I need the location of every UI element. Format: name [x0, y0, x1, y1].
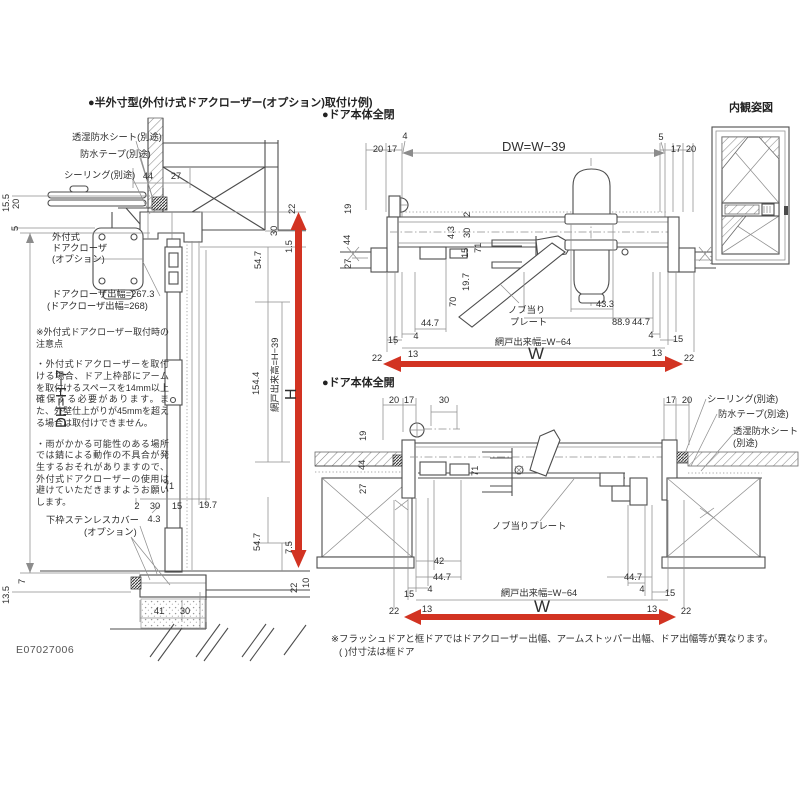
dim-label: 4	[402, 131, 407, 141]
callout-door-closer-3: (オプション)	[52, 254, 105, 264]
right-jamb-closed	[668, 217, 716, 272]
dim-label: 15	[404, 589, 414, 599]
callout-sealing-open: シーリング(別途)	[707, 393, 778, 404]
dim-label: 4	[648, 330, 653, 340]
closer-projection-label: ドアクローザ出幅=267.3	[52, 288, 154, 299]
closed-section-title: ●ドア本体全閉	[322, 106, 395, 122]
dim-label: 44.7	[433, 572, 451, 582]
dim-label: 22	[287, 204, 297, 214]
dw-label: DW=W−39	[502, 139, 566, 154]
dim-label: 2	[462, 212, 472, 217]
dim-label: 30	[269, 226, 279, 236]
right-wall-open	[662, 452, 798, 568]
dim-label: 27	[343, 259, 353, 269]
callout-moisture-sheet: 透湿防水シート(別途)	[72, 131, 162, 142]
dim-label: 30	[439, 395, 449, 405]
callout-knob-plate-2: プレート	[510, 317, 547, 327]
dim-label: 17	[671, 144, 681, 154]
dim-label: 27	[358, 484, 368, 494]
dim-label: 22	[681, 606, 691, 616]
dim-label: 13.5	[1, 586, 11, 604]
hinge-open	[410, 423, 460, 437]
callout-waterproof-tape: 防水テープ(別途)	[80, 148, 151, 159]
dim-label: 54.7	[253, 251, 263, 269]
dim-label: 71	[473, 243, 483, 253]
dim-label: 17	[387, 144, 397, 154]
head-frame-profile	[140, 212, 202, 242]
w-label-open: W	[534, 597, 550, 616]
dim-label: 54.7	[252, 533, 262, 551]
dim-label: 19	[343, 204, 353, 214]
dim-label: 44.7	[624, 572, 642, 582]
dim-label: 27	[171, 171, 181, 181]
dim-label: 19	[358, 431, 368, 441]
dim-label: 10	[301, 578, 311, 588]
dim-label: 20	[389, 395, 399, 405]
caution-heading: ※外付式ドアクローザー取付時の注意点	[36, 327, 169, 350]
dim-label: 7	[17, 579, 27, 584]
dim-label: 4	[427, 584, 432, 594]
callout-knob-plate-open: ノブ当りプレート	[492, 520, 566, 531]
dim-label: 30	[180, 606, 190, 616]
callout-door-closer: 外付式	[52, 231, 80, 242]
dim-label: 44	[357, 460, 367, 470]
elevation-handle-tab	[784, 206, 788, 215]
dim-label: 22	[289, 583, 299, 593]
dim-label: 19.7	[199, 500, 217, 510]
dim-label: 15	[460, 248, 470, 258]
caution-note-2: ・雨がかかる可能性のある場所では錆による動作の不具合が発生するおそれがありますの…	[36, 439, 169, 509]
callout-moisture-sheet-open-2: (別途)	[733, 437, 758, 448]
door-leaf-section	[165, 239, 192, 572]
footnote-1: ※フラッシュドアと框ドアではドアクローザー出幅、アームストッパー出幅、ドア出幅等…	[331, 634, 796, 647]
concrete-step	[141, 599, 205, 628]
dim-label: 4.3	[148, 514, 161, 524]
callout-door-closer-2: ドアクローザ	[52, 243, 107, 253]
dim-label: 44	[143, 171, 153, 181]
open-section-title: ●ドア本体全開	[322, 374, 395, 390]
elevation-drawing	[712, 127, 789, 264]
dim-label: 44.7	[421, 318, 439, 328]
closer-projection-alt-label: (ドアクローザ出幅=268)	[47, 300, 148, 311]
callout-knob-plate: ノブ当り	[508, 304, 545, 315]
technical-drawing-page: 透湿防水シート(別途)防水テープ(別途)シーリング(別途)外付式ドアクローザ(オ…	[0, 0, 800, 800]
door-leaf-open	[418, 462, 625, 478]
footnote-block: ※フラッシュドアと框ドアではドアクローザー出幅、アームストッパー出幅、ドア出幅等…	[331, 634, 796, 660]
dim-label: 5	[658, 132, 663, 142]
sill-and-ground	[40, 571, 310, 661]
dim-label: 41	[154, 606, 164, 616]
latch-assembly-open	[482, 430, 560, 496]
dim-label: 42	[434, 556, 444, 566]
door-leaf-closed	[390, 212, 674, 259]
dim-label: 15	[673, 334, 683, 344]
callout-sill-cover-2: (オプション)	[84, 527, 137, 537]
dim-label: 22	[372, 353, 382, 363]
dim-label: 20	[682, 395, 692, 405]
hinge-closed	[389, 196, 409, 217]
sealing-block	[152, 197, 167, 210]
dim-label: 30	[462, 228, 472, 238]
callout-sill-cover: 下枠ステンレスカバー	[46, 514, 139, 525]
caution-note-block: ※外付式ドアクローザー取付時の注意点 ・外付式ドアクローザーを取付ける場合、ドア…	[36, 327, 169, 509]
footnote-2: ( )付寸法は框ドア	[339, 647, 796, 660]
callout-waterproof-tape-open: 防水テープ(別途)	[718, 408, 789, 419]
dim-label: 4	[413, 331, 418, 341]
callout-sealing: シーリング(別途)	[64, 169, 135, 180]
dim-label: 4.3	[446, 226, 456, 239]
dim-label: 22	[389, 606, 399, 616]
dim-label: 13	[652, 348, 662, 358]
screen-height-label: 網戸出来高=H−39	[269, 338, 280, 412]
dim-label: 70	[448, 297, 458, 307]
callout-moisture-sheet-open: 透湿防水シート	[733, 425, 798, 436]
dim-label: 17	[404, 395, 414, 405]
dim-label: 44	[342, 235, 352, 245]
dim-label: 17	[666, 395, 676, 405]
dim-label: 15	[172, 501, 182, 511]
dim-label: 15.5	[1, 194, 11, 212]
dim-label: 1.5	[284, 240, 294, 253]
dim-label: 13	[408, 349, 418, 359]
dim-label: 20	[373, 144, 383, 154]
dim-label: 43.3	[596, 299, 614, 309]
dim-label: 88.9	[612, 317, 630, 327]
caution-note-1: ・外付式ドアクローザーを取付ける場合、ドア上枠部にアームを取付けるスペースを14…	[36, 359, 169, 429]
dim-label: 20	[11, 199, 21, 209]
drawing-code: E07027006	[16, 644, 74, 656]
dim-label: 22	[684, 353, 694, 363]
open-plan-drawing: 2017301720シーリング(別途)防水テープ(別途)透湿防水シート(別途)1…	[315, 393, 798, 625]
dim-label: 15	[665, 588, 675, 598]
elevation-title: 内観姿図	[716, 99, 786, 115]
dim-label: 15	[388, 335, 398, 345]
dim-label: 44.7	[632, 317, 650, 327]
dim-label: 13	[647, 604, 657, 614]
lock-edge-open	[600, 473, 647, 505]
dim-label: 13	[422, 604, 432, 614]
w-label: W	[528, 344, 544, 363]
dim-label: 20	[686, 144, 696, 154]
dim-label: 19.7	[461, 273, 471, 291]
dim-label: 71	[470, 466, 480, 476]
dim-label: 5	[10, 226, 20, 231]
h-label: H	[283, 388, 300, 400]
dim-label: 4	[639, 584, 644, 594]
dim-label: 7.5	[284, 541, 294, 554]
open-top-dimension-lines	[383, 398, 689, 445]
dim-label: 154.4	[251, 372, 261, 395]
closed-plan-drawing: 20174DW=W−395172019442724.330157119.7704…	[340, 131, 716, 372]
